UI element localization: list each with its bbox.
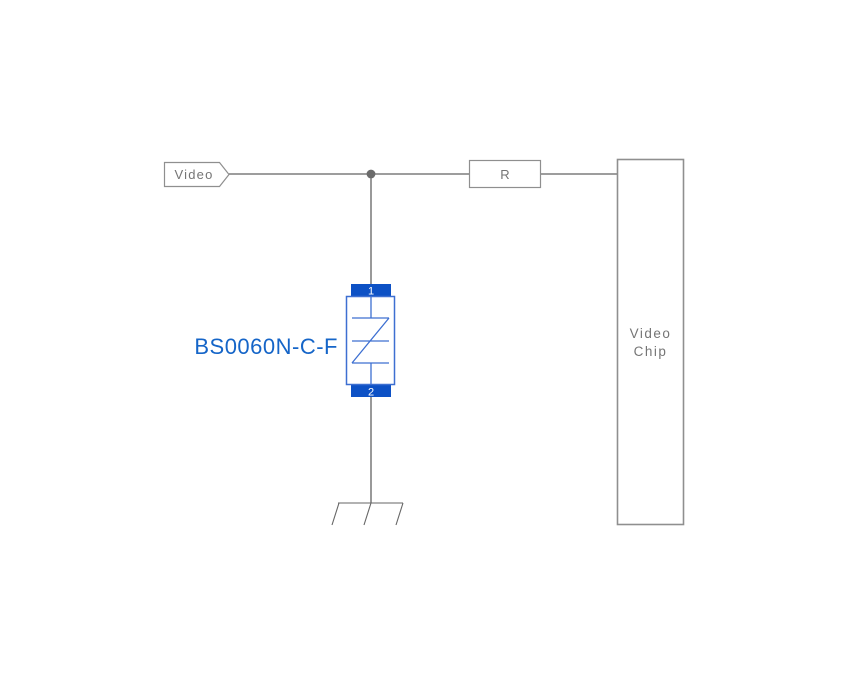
pin1-number: 1 — [368, 286, 374, 298]
schematic-canvas: Video R Video Chip 1 2 BS0060N-C-F — [0, 0, 846, 686]
pin2-number: 2 — [368, 387, 374, 399]
junction-dot — [367, 170, 376, 179]
component-label: BS0060N-C-F — [194, 334, 338, 359]
video-chip-label-line1: Video — [630, 326, 672, 341]
video-chip-label-line2: Chip — [634, 344, 668, 359]
video-chip: Video Chip — [618, 160, 684, 525]
ground-strokes — [332, 503, 403, 525]
resistor: R — [470, 161, 541, 188]
ground-symbol — [332, 503, 403, 525]
net-flag-label: Video — [174, 167, 213, 182]
resistor-label: R — [500, 167, 509, 182]
circuit-diagram: Video R Video Chip 1 2 BS0060N-C-F — [0, 0, 846, 686]
video-net-flag: Video — [165, 163, 230, 187]
esd-protection-component: 1 2 BS0060N-C-F — [194, 284, 394, 399]
video-chip-body — [618, 160, 684, 525]
